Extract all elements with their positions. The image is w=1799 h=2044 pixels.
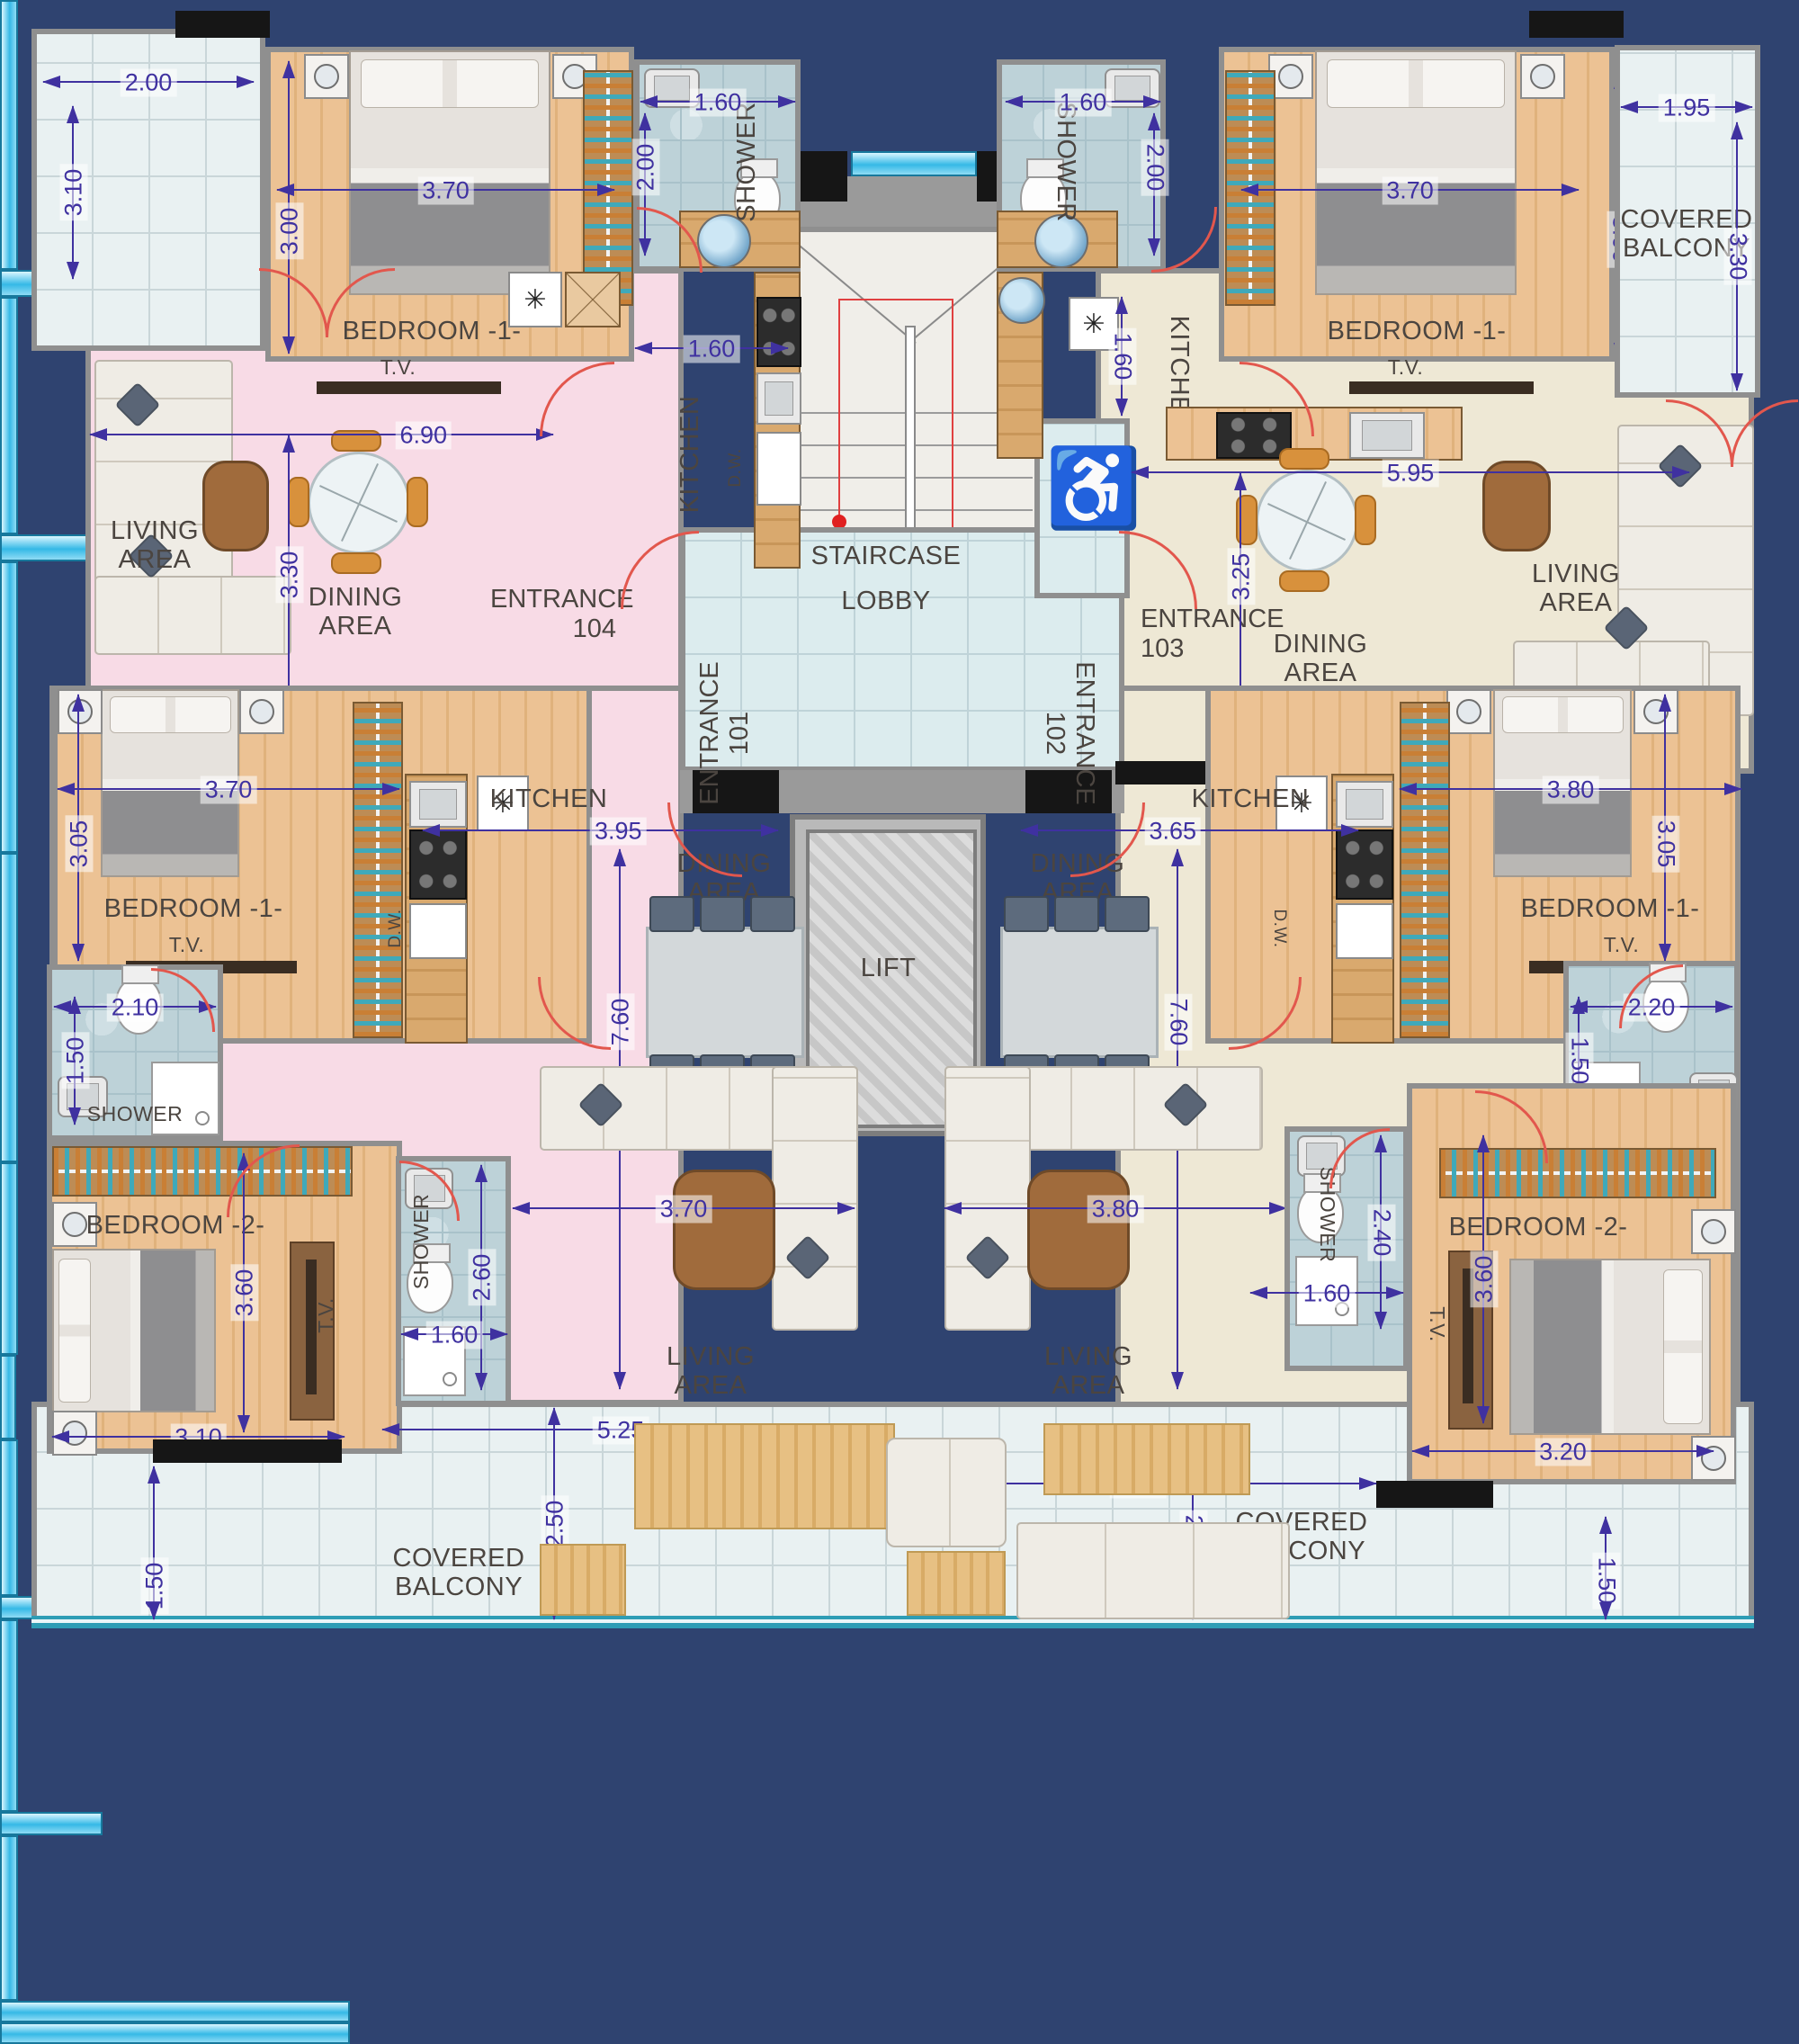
wardrobe-br1 bbox=[1400, 702, 1450, 1038]
dim-tl-bed-w: 3.70 bbox=[277, 189, 614, 191]
staircase-path-top bbox=[838, 299, 953, 300]
staircase-path-left bbox=[838, 299, 840, 518]
tv-bl2-label: T.V. bbox=[299, 1230, 353, 1401]
bed-bl2 bbox=[52, 1249, 216, 1412]
floor-plan: ♿ STAIRCASE LOBBY LIFT ENTRANCE 101 ENTR… bbox=[0, 0, 1799, 1630]
dim-br-bed1-w: 3.80 bbox=[1400, 788, 1741, 790]
nightstand-br2-top bbox=[1691, 1209, 1736, 1254]
dim-bl-bed1-h: 3.05 bbox=[77, 695, 79, 961]
outdoor-table-left bbox=[540, 1544, 626, 1616]
tv-tr-label: T.V. bbox=[1367, 356, 1444, 380]
dim-tl-balcony-h: 3.10 bbox=[72, 106, 74, 279]
kitchen-tr-sink bbox=[1349, 412, 1425, 459]
dim-br-shower2-w: 1.60 bbox=[1250, 1292, 1403, 1294]
outdoor-mat-2 bbox=[1043, 1423, 1250, 1495]
lift-label: LIFT bbox=[796, 954, 980, 982]
dining-table-tr bbox=[1256, 470, 1358, 572]
dim-br-living-w: 3.80 bbox=[944, 1207, 1286, 1209]
balcony-window-right bbox=[0, 2022, 350, 2044]
chair-br-2 bbox=[1054, 896, 1099, 932]
bed-tl bbox=[349, 50, 550, 295]
wall-top-1 bbox=[175, 11, 270, 38]
sofa-tl-chaise bbox=[94, 576, 291, 655]
coffee-table-bl bbox=[673, 1170, 775, 1290]
dim-tr-balcony-w: 1.95 bbox=[1621, 106, 1752, 108]
bed-br2 bbox=[1509, 1259, 1711, 1435]
chair-tl-right bbox=[407, 477, 428, 527]
staircase-window bbox=[851, 151, 977, 176]
dishwasher-br bbox=[1336, 903, 1393, 959]
stove-tl-icon bbox=[756, 297, 801, 367]
entrance-102-number: 102 bbox=[1041, 712, 1070, 755]
dining-tr-label: DINING AREA bbox=[1249, 630, 1392, 688]
wheelchair-icon: ♿ bbox=[1045, 450, 1141, 527]
entrance-104-text: ENTRANCE bbox=[490, 585, 634, 614]
closet-tl bbox=[565, 272, 621, 327]
outdoor-side-table bbox=[907, 1551, 1006, 1616]
bedroom1-br-label: BEDROOM -1- bbox=[1475, 894, 1745, 923]
dim-br-bed2-w: 3.20 bbox=[1412, 1450, 1714, 1452]
dim-bl-shower2-h: 2.60 bbox=[480, 1165, 482, 1390]
tv-br2-label: T.V. bbox=[1410, 1239, 1464, 1410]
tv-bl1-label: T.V. bbox=[148, 934, 225, 957]
entrance-101-number: 101 bbox=[725, 712, 754, 755]
bedroom2-bl-window bbox=[0, 1439, 18, 1596]
wardrobe-bl2 bbox=[52, 1146, 353, 1197]
dim-tl-shower-w: 1.60 bbox=[640, 101, 795, 103]
dim-bl-bed1-w: 3.70 bbox=[58, 788, 399, 790]
entrance-103-number: 103 bbox=[1141, 634, 1184, 663]
fixture-tl-star: ✳ bbox=[508, 272, 562, 327]
wall-balcony-1 bbox=[153, 1439, 342, 1463]
living-br-label: LIVING AREA bbox=[1016, 1342, 1160, 1401]
kitchen-bl-sink bbox=[409, 781, 467, 828]
nightstand-br1-right bbox=[1633, 689, 1678, 734]
dw-bl-label: D.W. bbox=[369, 843, 423, 1014]
dim-tr-living-w: 5.95 bbox=[1132, 471, 1689, 473]
balcony-tr-window bbox=[0, 561, 18, 853]
chair-bl-2 bbox=[700, 896, 745, 932]
tv-unit-tr bbox=[1349, 381, 1534, 394]
chair-bl-3 bbox=[750, 896, 795, 932]
bedroom2-br-label: BEDROOM -2- bbox=[1403, 1213, 1673, 1242]
dim-tr-balcony-h: 3.30 bbox=[1736, 122, 1738, 390]
tv-unit-tl bbox=[317, 381, 501, 394]
shower2-br-window bbox=[0, 1812, 103, 1835]
nightstand-br2-bottom bbox=[1691, 1436, 1736, 1481]
kitchen-tl-label: KITCHEN bbox=[663, 369, 717, 540]
bedroom2-br-window bbox=[0, 1835, 18, 2001]
chair-tl-bottom bbox=[331, 552, 381, 574]
dining-table-tl bbox=[308, 452, 410, 554]
living-tr-window bbox=[0, 853, 18, 1162]
dim-tr-kitchen-w: 1.60 bbox=[1121, 297, 1123, 416]
entrance-102-text: ENTRANCE bbox=[1070, 661, 1099, 805]
staircase-rail bbox=[905, 326, 916, 545]
dim-tr-bed-w: 3.70 bbox=[1241, 189, 1579, 191]
entrance-104-number: 104 bbox=[573, 614, 616, 643]
floor-plan-screenshot: { "icons": {"wheelchair": "♿", "fixture"… bbox=[0, 0, 1799, 1630]
dim-tl-kitchen-w: 1.60 bbox=[635, 347, 788, 349]
outdoor-mat bbox=[634, 1423, 895, 1529]
dim-bl-bed2-w: 3.10 bbox=[52, 1436, 345, 1438]
outdoor-sofa bbox=[1016, 1522, 1290, 1619]
dishwasher-tl bbox=[756, 432, 801, 506]
staircase-path-right bbox=[952, 299, 953, 531]
bed-tr bbox=[1315, 50, 1517, 295]
kitchen-bl-label: KITCHEN bbox=[477, 784, 621, 813]
living-tr-label: LIVING AREA bbox=[1504, 560, 1648, 618]
dim-bl-balcony-side: 1.50 bbox=[153, 1466, 155, 1619]
tv-br1-label: T.V. bbox=[1583, 934, 1660, 957]
chair-bl-1 bbox=[649, 896, 694, 932]
bedroom1-tr-label: BEDROOM -1- bbox=[1282, 317, 1552, 345]
stove-br-icon bbox=[1336, 829, 1393, 900]
dim-bl-living-w: 3.70 bbox=[513, 1207, 855, 1209]
nightstand-tl-left bbox=[304, 54, 349, 99]
shower1-bl-window bbox=[0, 1355, 16, 1439]
nightstand-br1-left bbox=[1446, 689, 1491, 734]
staircase-label: STAIRCASE bbox=[774, 542, 998, 570]
dining-table-br bbox=[1000, 927, 1159, 1058]
balcony-window-left bbox=[0, 2001, 350, 2022]
living-bl-label: LIVING AREA bbox=[639, 1342, 783, 1401]
sofa-bl-right bbox=[772, 1066, 858, 1331]
dining-table-bl bbox=[646, 927, 804, 1058]
dw-tl-label: D.W. bbox=[709, 382, 763, 553]
fixture-icon: ✳ bbox=[1082, 309, 1105, 340]
living-tl-window bbox=[0, 297, 18, 534]
outdoor-armchair bbox=[886, 1438, 1007, 1547]
entrance-101-text: ENTRANCE bbox=[695, 661, 724, 805]
dim-bl-shower2-w: 1.60 bbox=[401, 1333, 507, 1335]
balcony-tl-window bbox=[0, 0, 18, 270]
entrance-102-label: ENTRANCE 102 bbox=[1042, 657, 1099, 810]
wall-top-2 bbox=[1529, 11, 1624, 38]
chair-tr-top bbox=[1279, 448, 1329, 470]
kitchen-br-sink bbox=[1336, 781, 1393, 828]
entrance-101-label: ENTRANCE 101 bbox=[695, 657, 753, 810]
living-tl-label: LIVING AREA bbox=[83, 516, 227, 575]
coffee-table-tr bbox=[1482, 461, 1551, 551]
entrance-104-label: ENTRANCE 104 bbox=[490, 585, 616, 645]
fixture-icon: ✳ bbox=[524, 284, 546, 316]
chair-tr-right bbox=[1355, 495, 1376, 545]
dim-bl-shower1-h: 1.50 bbox=[74, 997, 76, 1125]
sofa-br-left bbox=[944, 1066, 1031, 1331]
nightstand-tr-right bbox=[1520, 54, 1565, 99]
chair-br-1 bbox=[1004, 896, 1049, 932]
coffee-table-br bbox=[1027, 1170, 1130, 1290]
dim-tl-balcony-w: 2.00 bbox=[43, 81, 254, 83]
kitchen-br-label: KITCHEN bbox=[1178, 784, 1322, 813]
wall-balcony-2 bbox=[1376, 1481, 1493, 1508]
dim-tr-shower-w: 1.60 bbox=[1006, 101, 1160, 103]
nightstand-bl1-right bbox=[239, 689, 284, 734]
kitchen-tr-sink-round bbox=[998, 277, 1045, 324]
dim-br-bed1-h: 3.05 bbox=[1664, 695, 1666, 961]
bedroom1-bl-label: BEDROOM -1- bbox=[58, 894, 328, 923]
balcony-bl-label: COVERED BALCONY bbox=[378, 1544, 540, 1602]
dim-br-balcony-side: 1.50 bbox=[1605, 1517, 1607, 1619]
kitchen-tl-sink bbox=[756, 372, 801, 425]
chair-tr-bottom bbox=[1279, 570, 1329, 592]
shower1-bl-label: SHOWER bbox=[63, 1103, 207, 1126]
door-arc-shower-tr bbox=[1151, 207, 1217, 273]
dining-tl-label: DINING AREA bbox=[283, 583, 427, 641]
dim-tl-living-w: 6.90 bbox=[90, 434, 553, 435]
bedroom1-br-window bbox=[0, 1619, 18, 1812]
lobby-label: LOBBY bbox=[774, 587, 998, 615]
chair-tl-left bbox=[288, 477, 309, 527]
bedroom1-bl-window bbox=[0, 1162, 18, 1355]
dim-br-bed2-h: 3.60 bbox=[1482, 1135, 1484, 1423]
wall-mid-3 bbox=[1115, 761, 1214, 784]
chair-br-3 bbox=[1105, 896, 1150, 932]
tv-tl-label: T.V. bbox=[360, 356, 436, 380]
balcony-edge bbox=[31, 1616, 1754, 1628]
